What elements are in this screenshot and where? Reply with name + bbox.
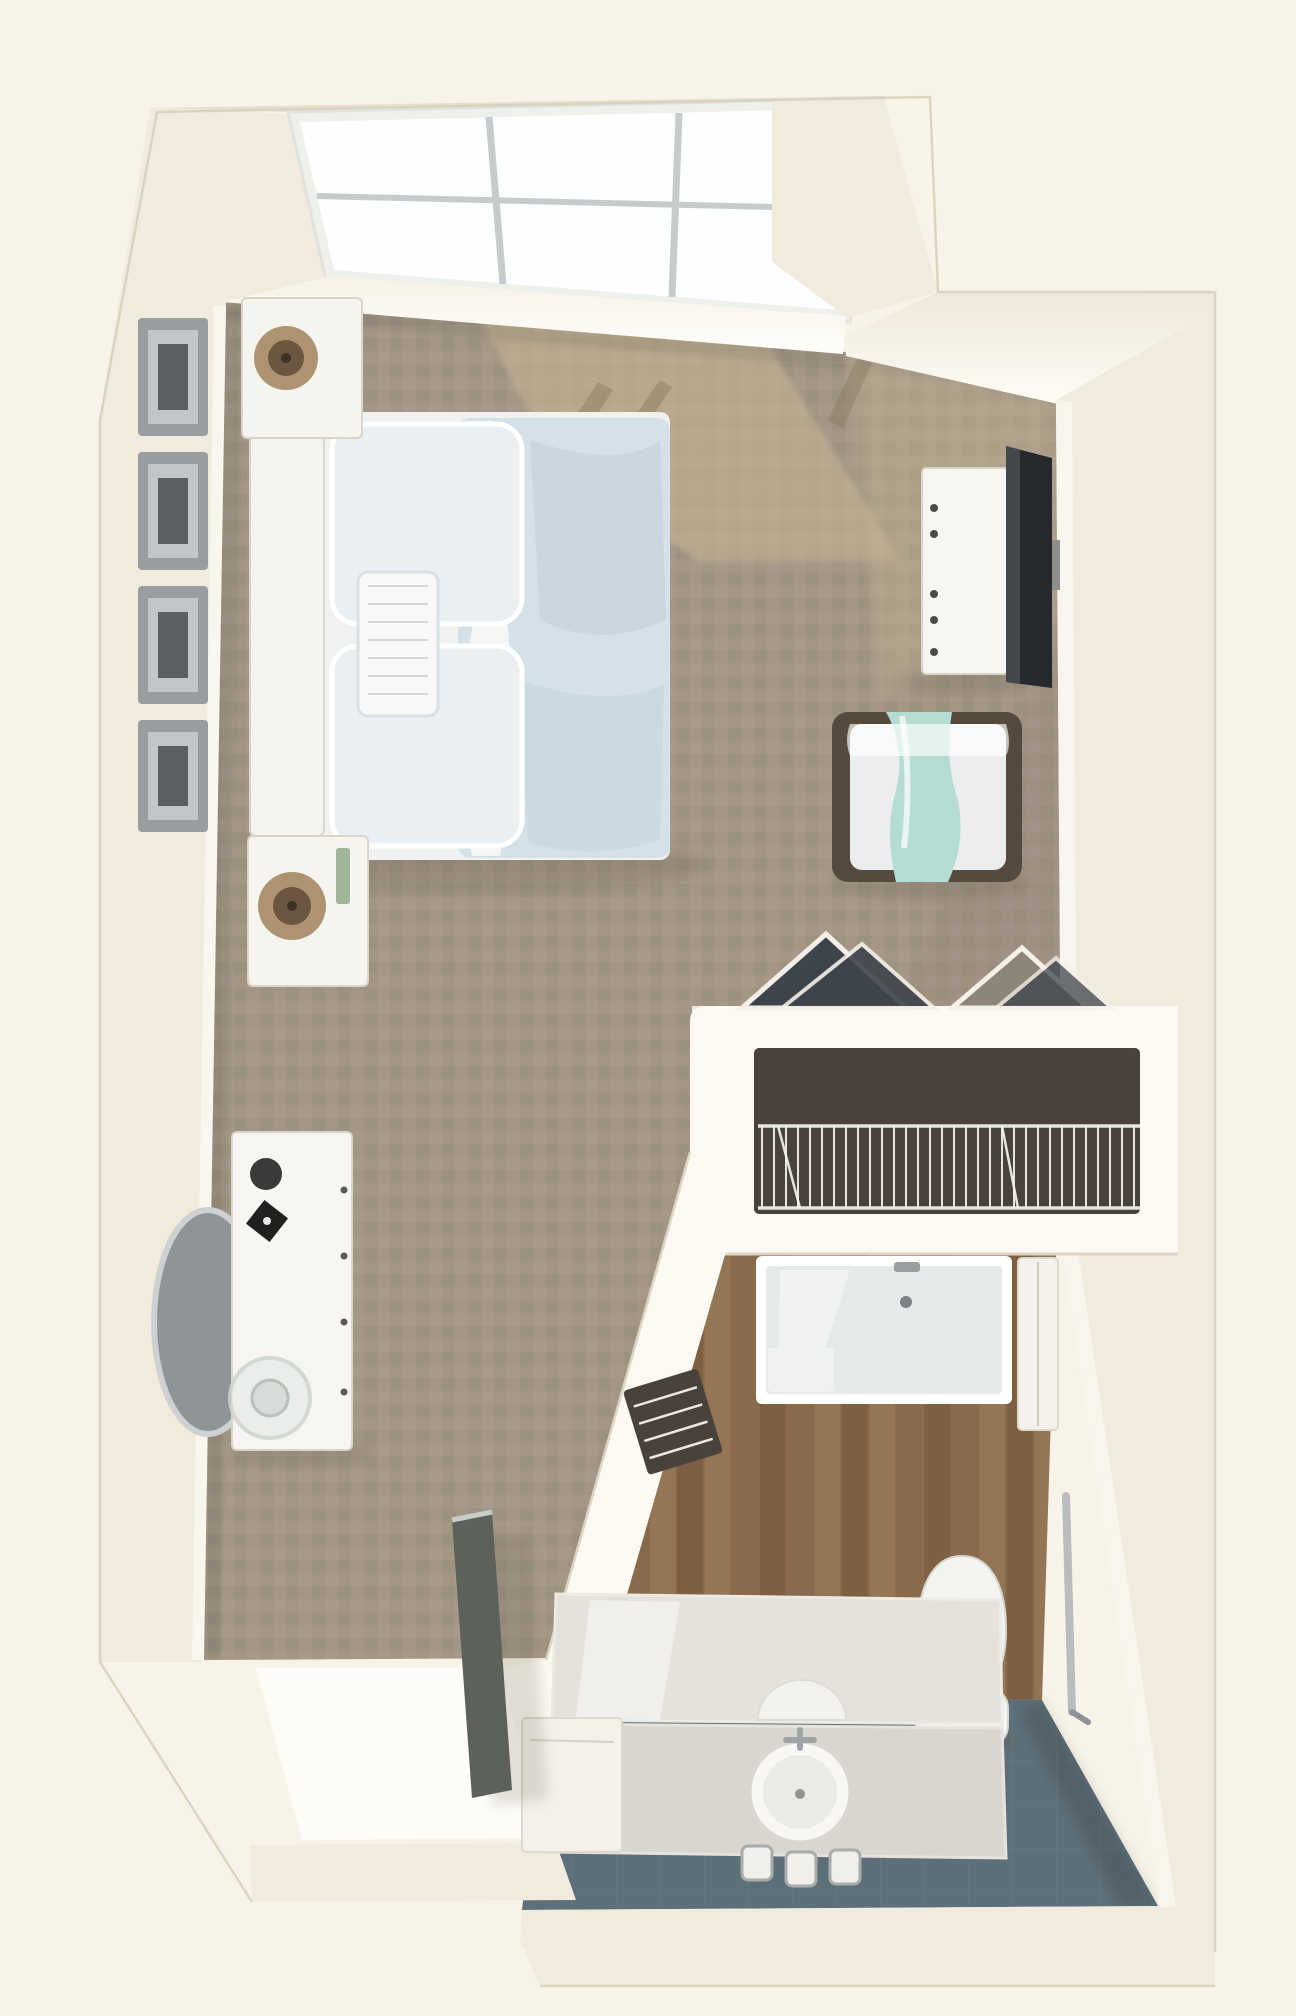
bed-group: Queen bed with light blue bedding bbox=[250, 412, 710, 892]
shower-seat bbox=[768, 1348, 834, 1392]
media-dresser: Media dresser bbox=[922, 468, 1008, 674]
armchair: Armchair with teal throw bbox=[830, 712, 1030, 900]
nightstand-foot: Nightstand with lamp (foot side) bbox=[248, 836, 368, 986]
armchair-armrest bbox=[847, 724, 1009, 756]
desk-item-phone-dot bbox=[263, 1217, 271, 1225]
vanity-canisters: Vanity canisters bbox=[742, 1846, 860, 1886]
lamp-window-finial bbox=[281, 353, 291, 363]
duvet-shading bbox=[530, 440, 666, 635]
lamp-foot-finial bbox=[287, 901, 297, 911]
headboard bbox=[250, 436, 324, 836]
shower: Walk-in shower bbox=[756, 1256, 1012, 1404]
desk-item-dish bbox=[250, 1158, 282, 1190]
art-frame-1 bbox=[138, 318, 208, 436]
vanity-sink-drain bbox=[795, 1789, 805, 1799]
wall-tv: Wall-mounted TV bbox=[1006, 446, 1060, 688]
duvet-shading-2 bbox=[520, 680, 664, 852]
side-cabinet: Bathroom storage cabinet bbox=[1018, 1258, 1058, 1430]
art-frame-3 bbox=[138, 586, 208, 704]
nightstand-book bbox=[336, 848, 350, 904]
closet-interior bbox=[754, 1048, 1140, 1214]
shower-drain bbox=[900, 1296, 912, 1308]
shower-control bbox=[894, 1262, 920, 1272]
art-frame-4 bbox=[138, 720, 208, 832]
floorplan-svg: Studio Suite 3D Floor Plan bbox=[0, 0, 1296, 2016]
nightstand-window: Nightstand with lamp (window side) bbox=[242, 298, 362, 438]
art-frame-2 bbox=[138, 452, 208, 570]
wall-bathroom-bottom bbox=[520, 1906, 1215, 1986]
floorplan-stage: Studio Suite 3D Floor Plan bbox=[0, 0, 1296, 2016]
desk-lamp-inner bbox=[252, 1380, 288, 1416]
